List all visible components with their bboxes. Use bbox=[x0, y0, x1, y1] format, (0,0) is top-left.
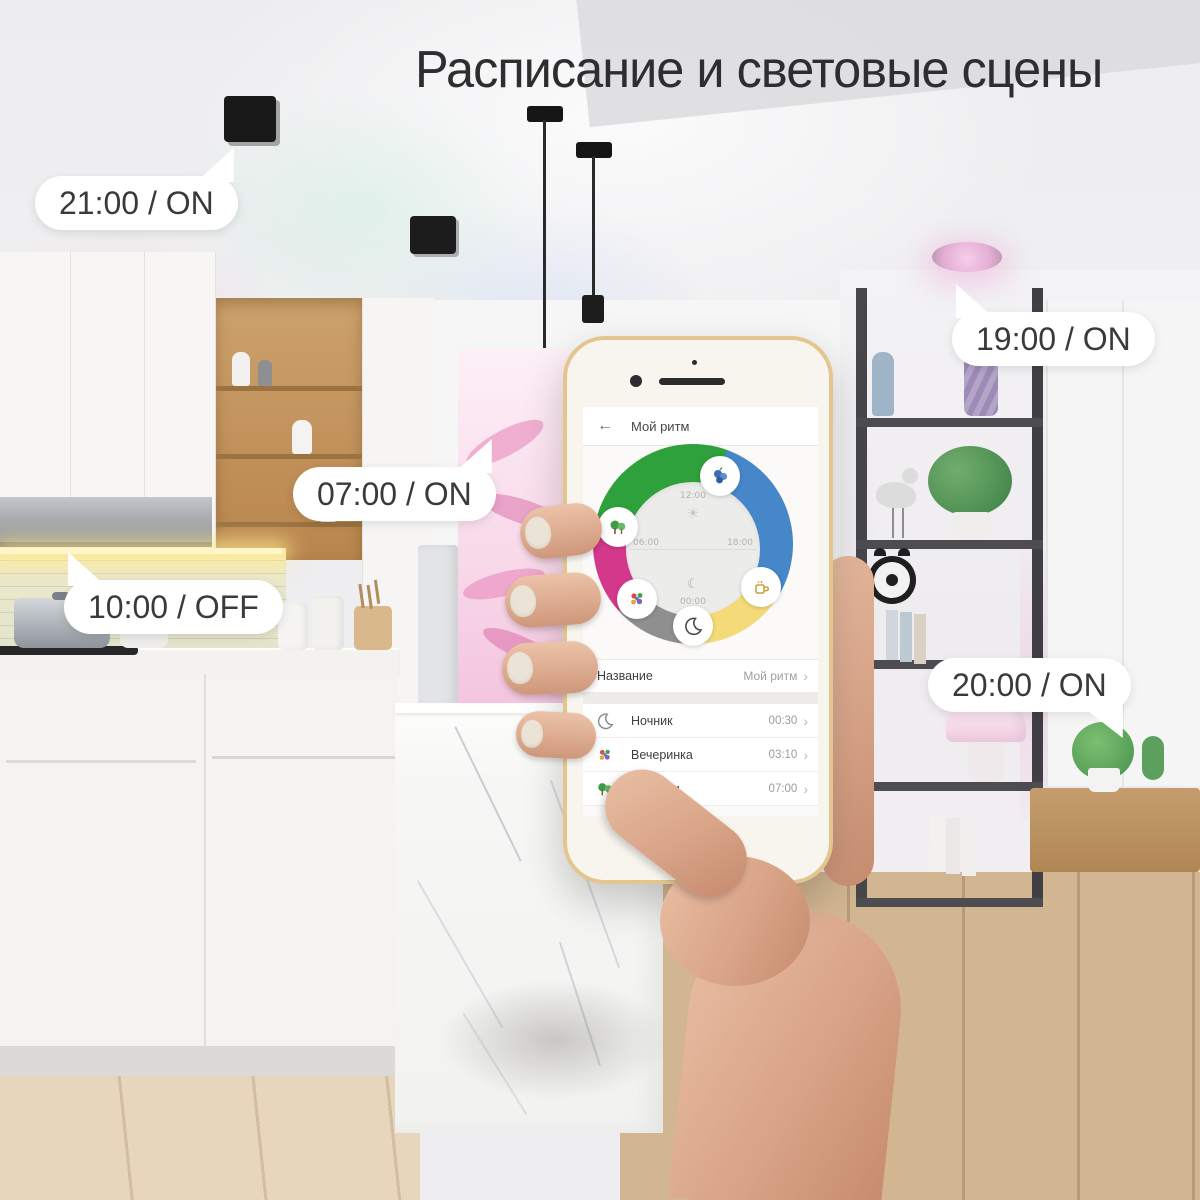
name-row-value: Мой ритм bbox=[743, 669, 797, 683]
kickboard bbox=[0, 1046, 398, 1076]
niche-shelf bbox=[216, 454, 362, 459]
scene-time: 00:30 bbox=[769, 715, 798, 727]
page-title: Расписание и световые сцены bbox=[415, 40, 1152, 100]
front-camera bbox=[630, 375, 642, 387]
plant-pot bbox=[952, 512, 990, 540]
jungle-glyph bbox=[608, 517, 628, 537]
scene-time: 07:00 bbox=[769, 783, 798, 795]
section-gap bbox=[583, 693, 818, 704]
party-glyph bbox=[627, 589, 647, 609]
coffee-glyph bbox=[751, 577, 771, 597]
callout-label: 21:00 / ON bbox=[59, 185, 214, 222]
cabinet-seam-vertical bbox=[204, 674, 206, 1046]
ring-finger bbox=[501, 640, 599, 695]
books-row bbox=[886, 610, 898, 660]
niche-shelf bbox=[216, 386, 362, 391]
sideboard-plant-pot bbox=[1088, 768, 1120, 792]
kitchen-canister bbox=[312, 596, 344, 650]
dial-time-right: 18:00 bbox=[727, 538, 753, 548]
alarm-clock-bells bbox=[874, 548, 886, 556]
scene-row-party[interactable]: Вечеринка 03:10 › bbox=[583, 738, 818, 772]
party-icon bbox=[596, 746, 614, 764]
chevron-right-icon: › bbox=[803, 713, 808, 729]
berries-icon[interactable] bbox=[700, 456, 740, 496]
callout-0700-on: 07:00 / ON bbox=[293, 467, 496, 521]
sun-icon: ☀ bbox=[626, 506, 760, 522]
schedule-dial-ring[interactable]: 12:00 ☀ 06:00 18:00 ☾ 00:00 bbox=[593, 444, 793, 644]
shelf-board bbox=[856, 540, 1043, 549]
jungle-icon[interactable] bbox=[598, 507, 638, 547]
bird-figurine-head bbox=[902, 468, 918, 484]
pendant-cord-1 bbox=[543, 120, 546, 382]
callout-label: 07:00 / ON bbox=[317, 476, 472, 513]
hand-shadow-on-island bbox=[440, 980, 670, 1100]
fingernail bbox=[509, 584, 537, 618]
cactus bbox=[1142, 736, 1164, 780]
night-moon-glyph bbox=[683, 616, 703, 636]
alarm-clock bbox=[868, 556, 916, 604]
shelf-vase bbox=[258, 360, 272, 386]
fingernail bbox=[523, 515, 553, 550]
callout-1000-off: 10:00 / OFF bbox=[64, 580, 283, 634]
chevron-right-icon: › bbox=[803, 781, 808, 797]
callout-2000-on: 20:00 / ON bbox=[928, 658, 1131, 712]
moon-icon bbox=[596, 712, 614, 730]
white-book-stack bbox=[930, 816, 944, 872]
fingernail bbox=[506, 652, 533, 685]
callout-2100-on: 21:00 / ON bbox=[35, 176, 238, 230]
middle-finger bbox=[503, 571, 602, 630]
callout-1900-on: 19:00 / ON bbox=[952, 312, 1155, 366]
fridge bbox=[418, 545, 458, 707]
dial-time-top: 12:00 bbox=[626, 491, 760, 501]
scene-row-night[interactable]: Ночник 00:30 › bbox=[583, 704, 818, 738]
coffee-icon[interactable] bbox=[741, 567, 781, 607]
back-arrow-icon[interactable]: ← bbox=[597, 417, 613, 435]
callout-label: 20:00 / ON bbox=[952, 667, 1107, 704]
fingernail bbox=[520, 719, 543, 748]
app-header: ← Мой ритм bbox=[583, 407, 818, 446]
shelf-vase bbox=[292, 420, 312, 454]
ceiling-spotlight-2 bbox=[410, 216, 456, 254]
potted-plant-large bbox=[928, 446, 1012, 516]
night-moon-icon[interactable] bbox=[673, 606, 713, 646]
phone-screen: ← Мой ритм 12:00 ☀ 06:00 18:00 ☾ 00:00 bbox=[583, 407, 818, 816]
callout-label: 10:00 / OFF bbox=[88, 589, 259, 626]
app-header-title: Мой ритм bbox=[631, 419, 689, 434]
shelf-board bbox=[856, 898, 1043, 907]
sideboard bbox=[1030, 788, 1200, 872]
utensil-holder bbox=[354, 606, 392, 650]
chevron-right-icon: › bbox=[803, 668, 808, 684]
pinky-finger bbox=[515, 710, 597, 760]
smartphone: ← Мой ритм 12:00 ☀ 06:00 18:00 ☾ 00:00 bbox=[563, 336, 833, 884]
scene-name: Ночник bbox=[631, 714, 673, 728]
recessed-pink-light bbox=[932, 242, 1002, 272]
mushroom-lamp-base bbox=[968, 742, 1004, 782]
dial-horizon-line bbox=[630, 549, 756, 550]
name-row-label: Название bbox=[597, 669, 653, 683]
pendant-cylinder-lamp bbox=[582, 295, 604, 323]
niche-shelf bbox=[216, 522, 362, 527]
promo-scene: Расписание и световые сцены 21:00 / ON 1… bbox=[0, 0, 1200, 1200]
proximity-sensor bbox=[692, 360, 697, 365]
shelf-vase bbox=[232, 352, 250, 386]
drawer-groove bbox=[212, 756, 396, 759]
pendant-cord-2 bbox=[592, 156, 595, 298]
ceiling-spotlight-1 bbox=[224, 96, 276, 142]
scene-time: 03:10 bbox=[769, 749, 798, 761]
dial-time-left: 06:00 bbox=[633, 538, 659, 548]
scene-name-row[interactable]: Название Мой ритм › bbox=[583, 659, 818, 693]
scene-name: Вечеринка bbox=[631, 748, 693, 762]
bird-figurine-legs bbox=[892, 508, 894, 538]
under-cabinet-led-strip bbox=[0, 548, 282, 554]
berries-glyph bbox=[710, 466, 730, 486]
chevron-right-icon: › bbox=[803, 747, 808, 763]
shelf-board bbox=[856, 782, 1043, 791]
lower-cabinets bbox=[0, 674, 398, 1046]
range-hood bbox=[0, 497, 212, 547]
drawer-groove bbox=[6, 760, 196, 763]
shelf-board bbox=[856, 418, 1043, 427]
party-icon[interactable] bbox=[617, 579, 657, 619]
earpiece-speaker bbox=[659, 378, 725, 385]
blue-vase bbox=[872, 352, 894, 416]
callout-label: 19:00 / ON bbox=[976, 321, 1131, 358]
bird-figurine bbox=[876, 482, 916, 508]
